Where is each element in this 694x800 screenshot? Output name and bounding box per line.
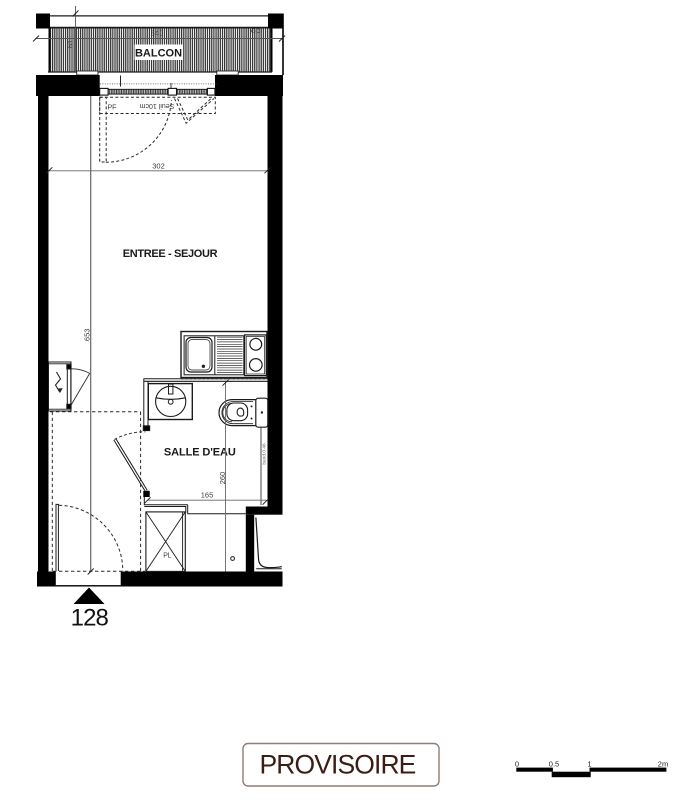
svg-text:PF: PF [108,105,117,112]
svg-text:0: 0 [515,760,519,769]
svg-text:PL: PL [163,553,171,560]
svg-text:165: 165 [201,490,214,499]
svg-text:1: 1 [587,760,591,769]
svg-text:61: 61 [65,40,74,48]
svg-text:128: 128 [71,605,109,632]
svg-text:2m: 2m [658,760,668,769]
svg-text:band.0.46: band.0.46 [262,443,268,465]
svg-text:340: 340 [151,29,164,38]
svg-text:Seuil 10cm: Seuil 10cm [140,102,175,109]
svg-text:653: 653 [83,329,92,342]
svg-text:BALCON: BALCON [135,48,182,60]
svg-text:ENTREE - SEJOUR: ENTREE - SEJOUR [123,248,218,260]
svg-text:0.5: 0.5 [549,760,559,769]
svg-text:GC: GC [251,28,261,35]
svg-text:260: 260 [218,472,227,485]
svg-text:PROVISOIRE: PROVISOIRE [260,750,416,780]
svg-text:302: 302 [152,161,165,170]
